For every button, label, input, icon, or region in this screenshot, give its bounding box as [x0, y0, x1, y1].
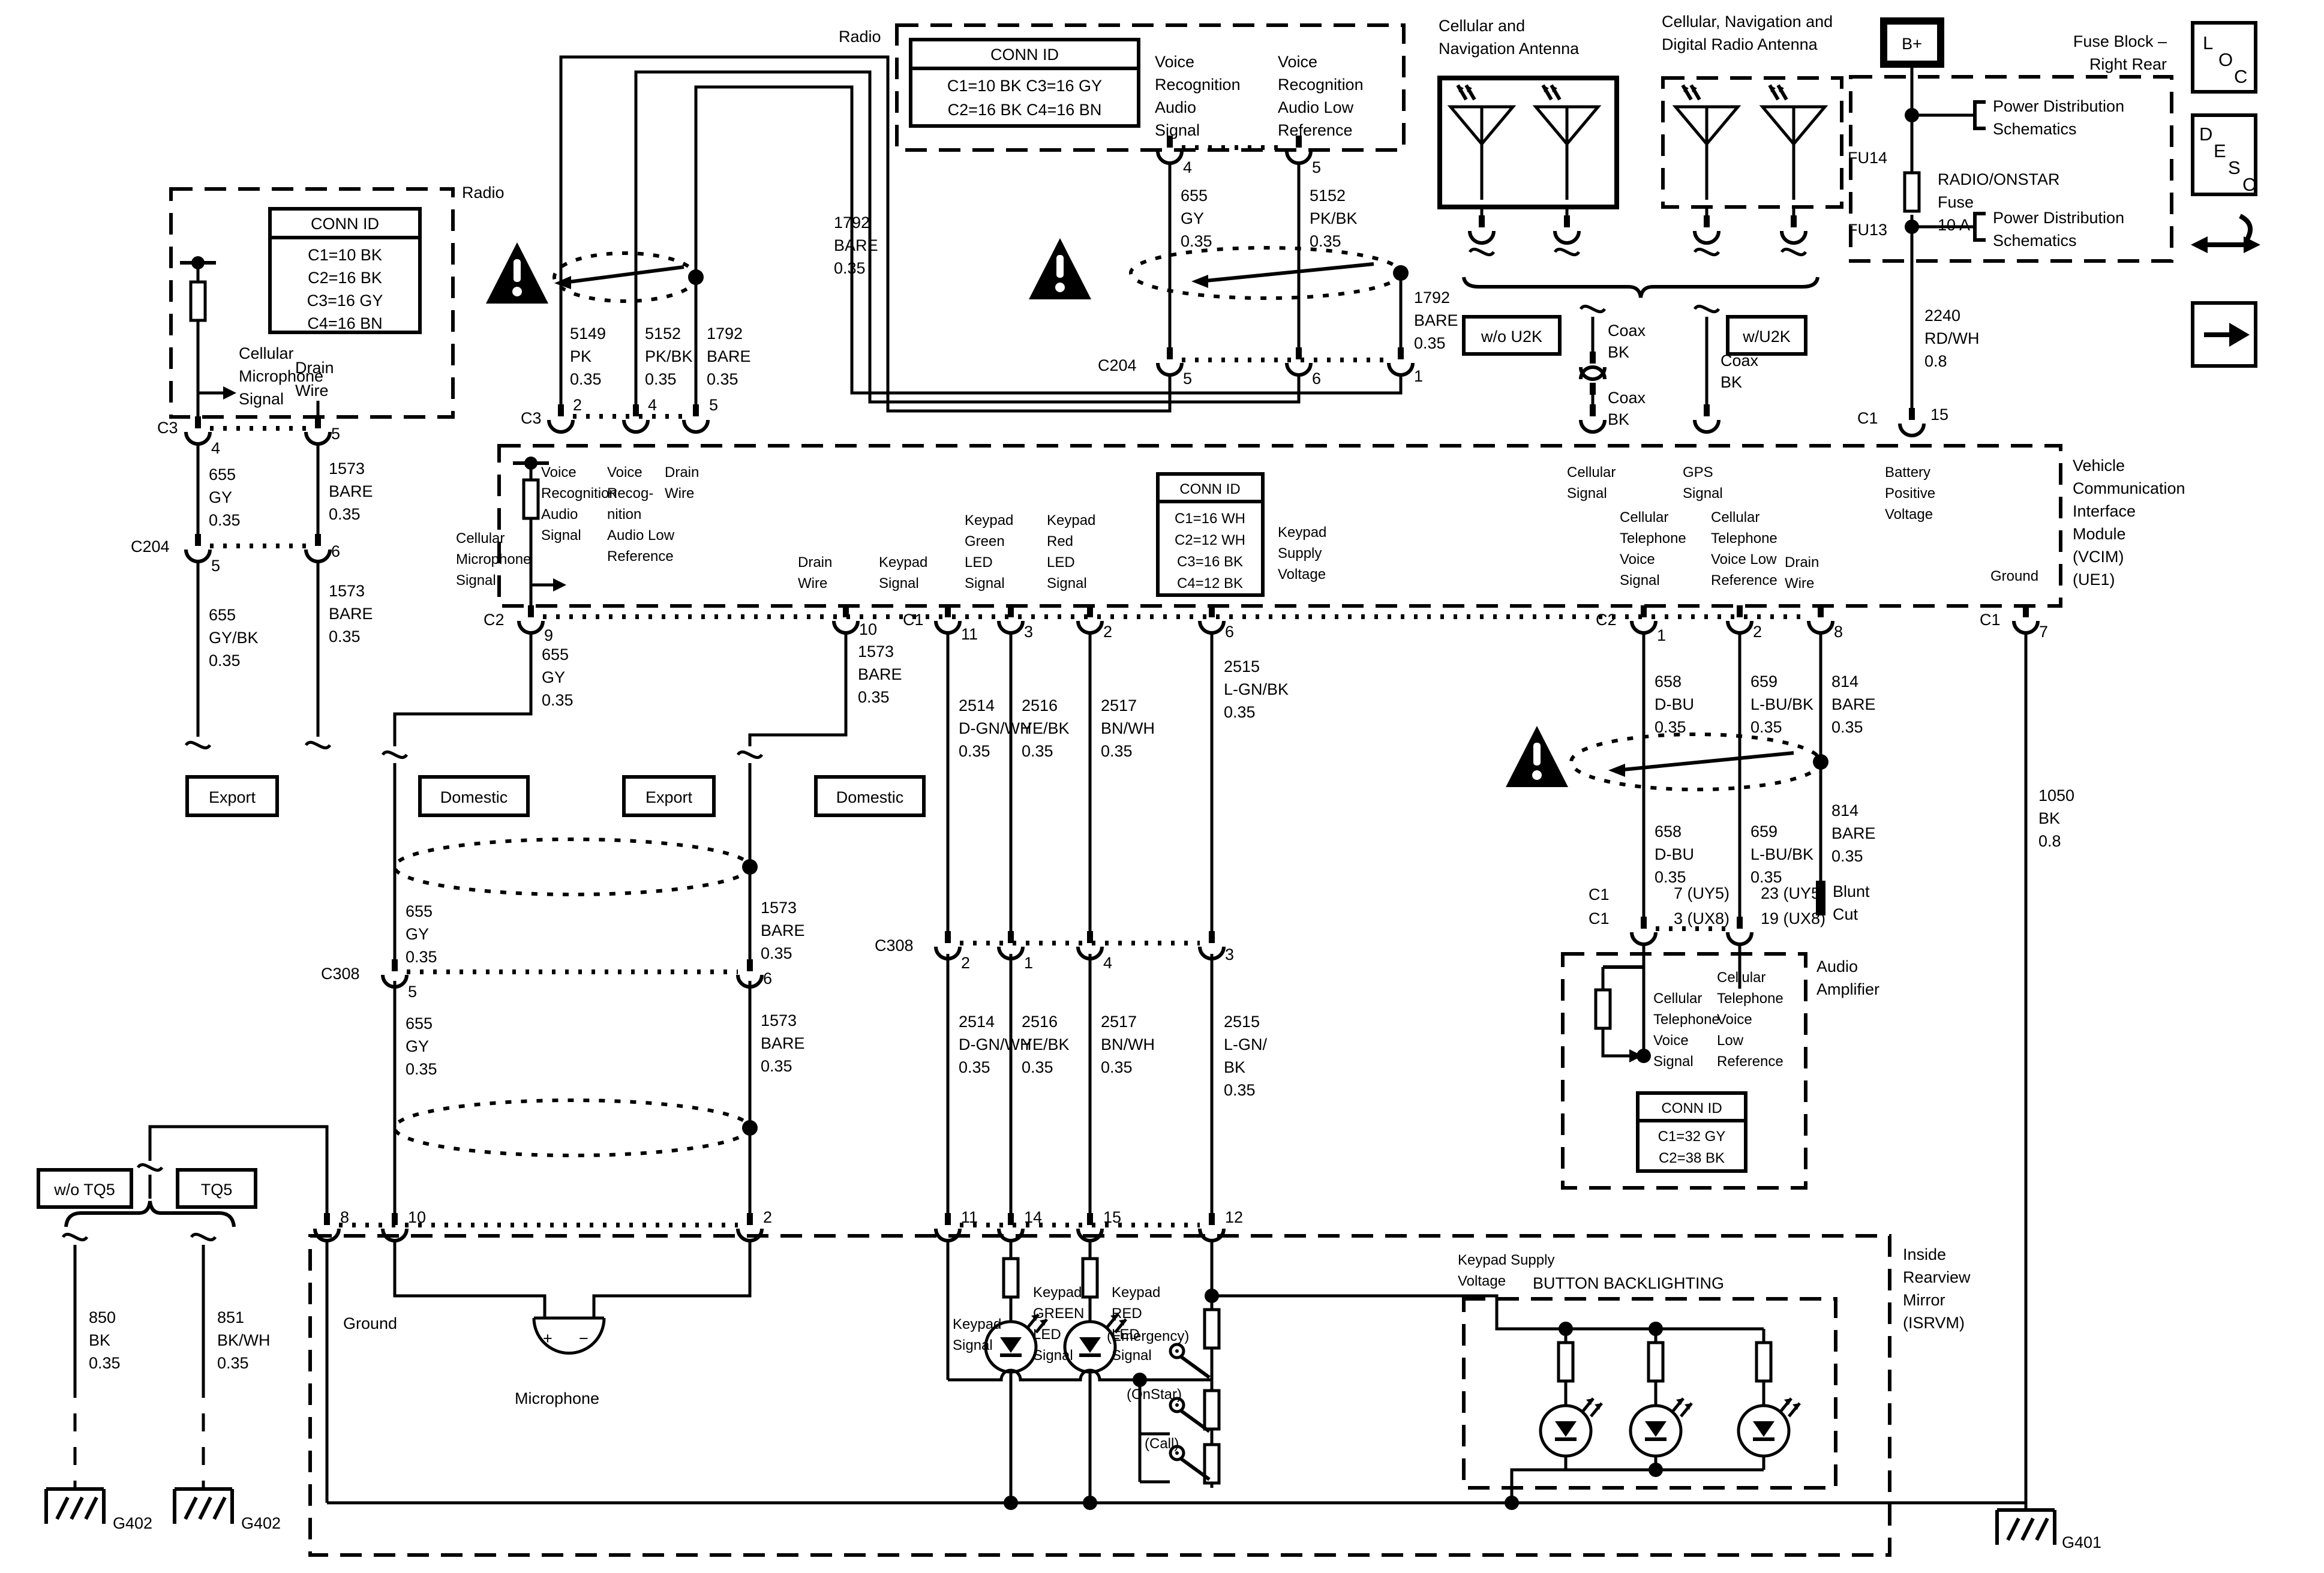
twisted-pair-shield-icon: [554, 253, 696, 301]
drain-wire-label: DrainWire: [798, 554, 832, 592]
wire-label-1792-bare: 1792BARE0.35: [1414, 289, 1458, 352]
pin-number: 9: [544, 626, 553, 644]
wire-label-655-gy: 655GY0.35: [406, 902, 437, 966]
power-distribution-ref-label: Power DistributionSchematics: [1993, 209, 2124, 250]
voice-recognition-harness: 655GY0.35 5152PK/BK0.35 1792BARE0.35 C20…: [1029, 163, 1458, 388]
connector-label: C308: [875, 936, 914, 954]
warning-triangle-icon: [486, 242, 548, 304]
wire-label-1573-bare: 1573BARE0.35: [858, 643, 902, 706]
resistor-icon: [1559, 1343, 1573, 1381]
ground-icon: [46, 1489, 104, 1524]
resistor-icon: [1596, 990, 1610, 1028]
connector-label: C1: [1980, 611, 2001, 629]
fuse-block: B+ Fuse Block –Right Rear Power Distribu…: [1848, 21, 2172, 436]
wire-label-658: 658D-BU0.35: [1655, 822, 1694, 886]
pin-number: 4: [1183, 158, 1192, 176]
backlight-led-icon: [1739, 1398, 1800, 1456]
pin-number: 1: [1657, 626, 1666, 644]
pin: [306, 534, 330, 562]
pin: [1389, 347, 1413, 375]
pin-number: 5: [709, 396, 718, 414]
wire-label-2517: 2517BN/WH0.35: [1101, 1013, 1155, 1076]
pin-number: 6: [331, 542, 340, 560]
pin: [834, 605, 858, 633]
resistor-icon: [524, 480, 538, 518]
microphone-harness: 655GY0.35 1573BARE0.35 C308 5 6 655GY0.3…: [321, 763, 805, 1221]
keypad-supply-voltage-label: KeypadSupplyVoltage: [1278, 524, 1326, 583]
variant-export: Export: [645, 788, 693, 806]
pin-number: 5: [211, 557, 220, 575]
pin: [306, 416, 330, 444]
conn-id-row: C2=38 BK: [1659, 1150, 1725, 1166]
pin-number: 7 (UY5): [1674, 884, 1730, 902]
call-label: (Call): [1145, 1436, 1179, 1452]
connector-label: C3: [157, 419, 178, 437]
vcim-conn-id-table: CONN ID C1=16 WH C2=12 WH C3=16 BK C4=12…: [1158, 474, 1263, 595]
signal-arrow-icon: [223, 386, 236, 400]
cellular-navigation-digital-radio-antenna-title: Cellular, Navigation andDigital Radio An…: [1662, 13, 1833, 53]
radio-top-box: Radio CONN ID C1=10 BK C3=16 GY C2=16 BK…: [839, 25, 1404, 176]
wire-continuation-icon: [1695, 306, 1719, 311]
wire-label-1050-bk: 1050BK0.8: [2038, 786, 2074, 850]
pin: [1900, 408, 1924, 436]
pin: [186, 534, 210, 562]
coax-bk-label: CoaxBK: [1721, 352, 1759, 391]
pin-number: 11: [961, 1208, 978, 1226]
fu14-label: FU14: [1848, 149, 1887, 167]
wire-continuation-icon: [738, 752, 762, 757]
warning-triangle-icon: [1029, 238, 1091, 299]
mic-minus: −: [579, 1329, 588, 1347]
ground-icon: [1997, 1510, 2055, 1545]
isrvm-label: InsideRearviewMirror(ISRVM): [1903, 1245, 1971, 1332]
keypad-green-led-label: KeypadGreenLEDSignal: [965, 512, 1013, 592]
cellular-telephone-voice-signal-label: CellularTelephoneVoiceSignal: [1653, 990, 1720, 1070]
pin-number: 4: [1103, 954, 1112, 972]
brace: [1464, 277, 1818, 298]
resistor-icon: [1756, 1343, 1771, 1381]
pin-number: 1: [1414, 367, 1423, 385]
coax-bk-label: CoaxBK: [1608, 322, 1646, 361]
connector-c204-left: C204 5 6 655GY/BK0.35 1573BARE0.35: [131, 534, 373, 748]
wiring-diagram: Radio CONN ID C1=10 BK C2=16 BK C3=16 GY…: [0, 0, 2324, 1573]
pin-number: 2: [1103, 623, 1112, 641]
emergency-label: (Emergency): [1107, 1328, 1189, 1344]
conn-id-row: C2=16 BK: [308, 269, 382, 287]
pin: [1782, 215, 1806, 243]
resistor-icon: [191, 282, 205, 320]
wire-label-658: 658D-BU0.35: [1655, 673, 1694, 736]
conn-id-header: CONN ID: [990, 46, 1059, 64]
resistor-icon: [1083, 1259, 1097, 1297]
connector-label: C1: [1589, 909, 1610, 927]
cellular-telephone-voice-low-ref-label: CellularTelephoneVoiceLowReference: [1717, 969, 1783, 1070]
conn-id-row: C2=16 BK C4=16 BN: [948, 101, 1102, 119]
pin: [549, 404, 573, 432]
wire-continuation-icon: [1581, 306, 1605, 311]
conn-id-row: C3=16 BK: [1177, 554, 1243, 570]
voice-recognition-audio-signal-label: VoiceRecognitionAudioSignal: [1155, 53, 1241, 139]
desc-letter: C: [2242, 174, 2256, 195]
antenna-section: Cellular andNavigation Antenna Cellular,…: [1439, 13, 1842, 428]
variant-domestic: Domestic: [440, 788, 508, 806]
pin-number: 10: [408, 1208, 426, 1226]
cellular-telephone-voice-low-ref-label: CellularTelephoneVoice LowReference: [1711, 509, 1777, 589]
audio-amplifier-label: AudioAmplifier: [1816, 957, 1879, 998]
backlight-led-icon: [1541, 1398, 1602, 1456]
wire-label-1573-bare: 1573BARE0.35: [329, 460, 373, 523]
pin-number: 8: [1834, 623, 1843, 641]
pin: [1200, 1213, 1224, 1241]
wire-label-655-gy: 655GY0.35: [209, 466, 241, 529]
ground-run: 1050BK0.8 G401: [1997, 633, 2101, 1551]
radio-left-box: Radio CONN ID C1=10 BK C2=16 BK C3=16 GY…: [171, 184, 505, 420]
loc-letter: L: [2203, 32, 2213, 53]
wire-label-1573-bare: 1573BARE0.35: [761, 1011, 805, 1075]
shield-arrow-icon: [1608, 764, 1625, 777]
resistor-icon: [1205, 1310, 1219, 1348]
wire-label-655-gybk: 655GY/BK0.35: [209, 606, 259, 670]
wire-label-655-gy: 655GY0.35: [1181, 187, 1212, 250]
pin-number: 15: [1103, 1208, 1121, 1226]
wire-label-2240-rdwh: 2240RD/WH0.8: [1924, 307, 1979, 370]
connector-label: C1: [1589, 885, 1610, 903]
connector-label: C2: [484, 611, 505, 629]
conn-id-row: C4=12 BK: [1177, 575, 1243, 592]
pin: [519, 605, 543, 633]
wire-label-814: 814BARE0.35: [1831, 801, 1876, 865]
resistor-icon: [1649, 1343, 1663, 1381]
fuse-icon: [1905, 173, 1919, 211]
radio-left-conn-id-table: CONN ID C1=10 BK C2=16 BK C3=16 GY C4=16…: [270, 209, 420, 332]
variant-split: 655GY0.35 1573BARE0.35 Export Domestic E…: [187, 633, 924, 815]
pin-number: 6: [1225, 623, 1234, 641]
wire-label-659: 659L-BU/BK0.35: [1750, 822, 1813, 886]
loc-letter: O: [2218, 49, 2233, 70]
pin-number: 2: [573, 396, 582, 414]
b-plus-label: B+: [1902, 35, 1922, 53]
connector-label: C1: [1857, 409, 1878, 427]
pin-number: 5: [1312, 158, 1321, 176]
resistor-icon: [1205, 1391, 1219, 1429]
ground-label: Ground: [1990, 568, 2038, 584]
pin-number: 6: [763, 969, 772, 987]
pin: [1695, 404, 1719, 432]
conn-id-row: C2=12 WH: [1175, 532, 1245, 548]
desc-letter: S: [2228, 157, 2241, 178]
conn-id-row: C1=10 BK: [308, 246, 382, 264]
ground-label: Ground: [343, 1314, 397, 1332]
wiring-diagram-page: Radio CONN ID C1=10 BK C2=16 BK C3=16 GY…: [0, 0, 2324, 1573]
wire-label-2515: 2515L-GN/BK0.35: [1224, 658, 1289, 721]
wire-label-5152-pkbk: 5152PK/BK0.35: [1310, 187, 1358, 250]
conn-id-row: C3=16 GY: [307, 292, 383, 310]
wire-continuation-icon: [383, 752, 407, 757]
pin-number: 11: [961, 625, 978, 643]
pin-number: 1: [1024, 954, 1033, 972]
wire-label-2516: 2516YE/BK0.35: [1022, 1013, 1070, 1076]
wire-label-1792-bare: 1792BARE0.35: [834, 214, 878, 277]
g402-label: G402: [241, 1514, 281, 1532]
wire-label-655-gy: 655GY0.35: [406, 1014, 437, 1078]
microphone-label: Microphone: [515, 1389, 599, 1407]
pin: [684, 404, 708, 432]
pin-number: 5: [1183, 370, 1192, 388]
pin-number: 7: [2039, 623, 2048, 641]
pin-number: 2: [1753, 623, 1762, 641]
connector-c3-left: C3 4 5 655GY0.35 1573BARE0.35: [157, 416, 373, 539]
power-distribution-ref-label: Power DistributionSchematics: [1993, 97, 2124, 138]
margin-icons: L O C D E S C: [2191, 23, 2260, 366]
telephone-voice-harness: 658D-BU0.35 659L-BU/BK0.35 814BARE0.35 6…: [1506, 633, 1876, 944]
vcim-module: VehicleCommunicationInterfaceModule(VCIM…: [456, 396, 2185, 644]
pin: [936, 1213, 960, 1241]
splice-dot: [742, 1120, 758, 1136]
wire-continuation-icon: [191, 1234, 215, 1239]
pin-number: 4: [648, 396, 657, 414]
wire-continuation-icon: [138, 1164, 162, 1170]
battery-positive-voltage-label: BatteryPositiveVoltage: [1885, 464, 1935, 523]
diagnostic-arrows-icon: [2191, 216, 2260, 253]
loc-letter: C: [2234, 66, 2247, 87]
pin: [1695, 215, 1719, 243]
vcim-module-label: VehicleCommunicationInterfaceModule(VCIM…: [2073, 457, 2185, 589]
vr-audio-signal-label: VoiceRecognitionAudioSignal: [541, 464, 617, 544]
wire-continuation-icon: [186, 742, 210, 748]
onstar-label: (OnStar): [1127, 1386, 1182, 1403]
cellular-telephone-voice-signal-label: CellularTelephoneVoiceSignal: [1620, 509, 1686, 589]
pin-number: 12: [1225, 1208, 1243, 1226]
wire-label-2516: 2516YE/BK0.35: [1022, 697, 1070, 760]
wire-label-659: 659L-BU/BK0.35: [1750, 673, 1813, 736]
cellular-microphone-signal-label: CellularMicrophoneSignal: [456, 530, 531, 589]
fuse-block-title: Fuse Block –Right Rear: [2073, 32, 2167, 73]
wire-label-1573-bare: 1573BARE0.35: [761, 899, 805, 962]
pin: [1632, 917, 1656, 944]
pin: [1158, 347, 1182, 375]
wire-label-851-bkwh: 851BK/WH0.35: [217, 1308, 271, 1372]
pin-number: 2: [763, 1208, 772, 1226]
variant-domestic: Domestic: [836, 788, 904, 806]
wire-continuation-icon: [1555, 249, 1579, 254]
wire-label-2515: 2515L-GN/BK0.35: [1224, 1013, 1268, 1099]
conn-id-header: CONN ID: [1179, 481, 1240, 497]
cellular-signal-label: CellularSignal: [1567, 464, 1616, 502]
wire-continuation-icon: [1470, 249, 1494, 254]
keypad-harness: 2514D-GN/WH0.35 2516YE/BK0.35 2517BN/WH0…: [875, 633, 1289, 1221]
pin-number: 8: [340, 1208, 349, 1226]
ground-icon: [175, 1489, 232, 1524]
wire-continuation-icon: [306, 742, 330, 748]
pin: [1470, 215, 1494, 243]
mic-plus: +: [543, 1329, 553, 1347]
connector-label: C204: [131, 538, 170, 556]
audio-amplifier: AudioAmplifier CellularTelephoneVoiceSig…: [1563, 944, 1879, 1188]
pin: [186, 416, 210, 444]
cellular-navigation-antenna-title: Cellular andNavigation Antenna: [1439, 17, 1580, 58]
pin-number: 4: [211, 439, 220, 457]
pin-number: 3 (UX8): [1674, 909, 1730, 927]
wire-continuation-icon: [63, 1234, 87, 1239]
pin-number: 10: [859, 620, 877, 638]
pin-number: 23 (UY5): [1761, 884, 1825, 902]
pin-number: 3: [1024, 623, 1033, 641]
variant-wo-u2k: w/o U2K: [1481, 328, 1542, 346]
radio-left-title: Radio: [462, 184, 505, 202]
wire-label-814: 814BARE0.35: [1831, 673, 1876, 736]
conn-id-row: C4=16 BN: [307, 314, 382, 332]
connector-label: C2: [1596, 611, 1617, 629]
amp-conn-id-table: CONN ID C1=32 GY C2=38 BK: [1638, 1093, 1746, 1171]
connector-label: C1: [903, 611, 924, 629]
coax-bk-label: CoaxBK: [1608, 389, 1646, 428]
twisted-pair-shield-icon: [395, 839, 750, 894]
wire-continuation-icon: [1782, 249, 1806, 254]
pin-number: 3: [1225, 945, 1234, 963]
radio-top-conn-id-table: CONN ID C1=10 BK C3=16 GY C2=16 BK C4=16…: [911, 40, 1139, 126]
pin-number: 19 (UX8): [1761, 909, 1825, 927]
voice-recognition-audio-low-reference-label: VoiceRecognitionAudio LowReference: [1278, 53, 1364, 139]
signal-arrow-icon: [553, 578, 566, 592]
desc-letter: E: [2214, 140, 2226, 161]
fu13-label: FU13: [1848, 221, 1887, 239]
pin-number: 14: [1024, 1208, 1042, 1226]
drain-wire-label: DrainWire: [1785, 554, 1819, 592]
drain-wire-label: DrainWire: [665, 464, 699, 502]
g401-label: G401: [2062, 1533, 2101, 1551]
pin-number: 5: [331, 425, 340, 443]
pin: [1581, 404, 1605, 432]
wire-label-2514: 2514D-GN/WH0.35: [959, 697, 1031, 760]
radio-top-title: Radio: [839, 28, 881, 46]
pin: [2014, 605, 2038, 633]
keypad-red-led-label: KeypadREDLEDSignal: [1112, 1284, 1160, 1364]
tq5-branch: w/o TQ5 TQ5 850BK0.35 851BK/WH0.35 G402 …: [38, 1127, 327, 1532]
conn-id-row: C1=16 WH: [1175, 511, 1245, 527]
wire-label-1792-bare: 1792BARE0.35: [707, 325, 751, 388]
variant-wo-tq5: w/o TQ5: [53, 1181, 115, 1199]
wire-label-2514: 2514D-GN/WH0.35: [959, 1013, 1031, 1076]
variant-export: Export: [209, 788, 256, 806]
wire-label-1573-bare: 1573BARE0.35: [329, 582, 373, 646]
keypad-red-led-label: KeypadRedLEDSignal: [1047, 512, 1095, 592]
keypad-signal-label: KeypadSignal: [953, 1316, 1001, 1353]
gps-signal-label: GPSSignal: [1683, 464, 1723, 502]
antenna-icon: [1676, 85, 1738, 200]
twisted-pair-shield-icon: [395, 1100, 750, 1155]
warning-triangle-icon: [1506, 726, 1568, 787]
pin: [1555, 215, 1579, 243]
resistor-icon: [1004, 1259, 1018, 1297]
splice-dot: [742, 859, 758, 875]
variant-w-u2k: w/U2K: [1742, 328, 1791, 346]
wire-label-2517: 2517BN/WH0.35: [1101, 697, 1155, 760]
connector-label: C308: [321, 965, 360, 983]
shield-arrow-icon: [1191, 275, 1208, 288]
pin-number: 15: [1930, 406, 1948, 424]
isrvm-module: InsideRearviewMirror(ISRVM) 8 10 2 11 14…: [310, 1208, 2026, 1555]
desc-letter: D: [2199, 124, 2212, 145]
conn-id-row: C1=10 BK C3=16 GY: [947, 77, 1102, 95]
splice-dot: [1813, 754, 1828, 770]
wire-label-5149-pk: 5149PK0.35: [570, 325, 606, 388]
variant-tq5: TQ5: [201, 1181, 233, 1199]
pin-number: 6: [1312, 370, 1321, 388]
blunt-cut-label: BluntCut: [1833, 882, 1870, 923]
keypad-signal-label: KeypadSignal: [879, 554, 927, 592]
connector-label: C3: [521, 409, 542, 427]
wire-label-655-gy: 655GY0.35: [542, 646, 574, 709]
pin-number: 5: [408, 983, 417, 1001]
splice-dot: [688, 269, 704, 285]
antenna-icon: [1762, 85, 1825, 200]
button-backlighting-title: BUTTON BACKLIGHTING: [1533, 1274, 1724, 1292]
wire-continuation-icon: [1695, 249, 1719, 254]
pin-number: 2: [961, 954, 970, 972]
connector-label: C204: [1098, 356, 1137, 374]
pin: [1728, 917, 1752, 944]
conn-id-header: CONN ID: [1661, 1100, 1722, 1116]
conn-id-header: CONN ID: [311, 215, 379, 233]
backlight-led-icon: [1631, 1398, 1692, 1456]
conn-id-row: C1=32 GY: [1658, 1128, 1726, 1145]
pin: [1809, 605, 1833, 633]
wire-label-850-bk: 850BK0.35: [89, 1308, 121, 1372]
g402-label: G402: [113, 1514, 152, 1532]
wire-label-5152-pkbk: 5152PK/BK0.35: [645, 325, 693, 388]
